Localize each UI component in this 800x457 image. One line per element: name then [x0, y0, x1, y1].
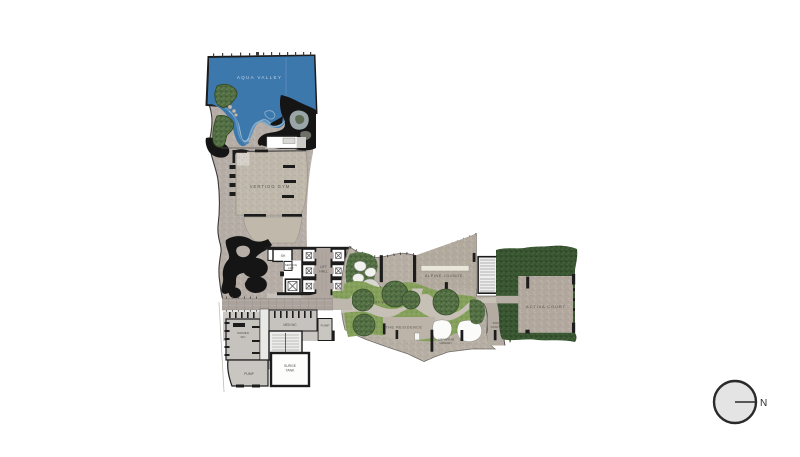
svg-text:ACTIVA COURT: ACTIVA COURT	[526, 304, 566, 309]
svg-text:SKY WALK CORRIDOR: SKY WALK CORRIDOR	[373, 301, 416, 305]
svg-text:THE RESIDENCE: THE RESIDENCE	[386, 326, 423, 330]
svg-text:PUMP: PUMP	[321, 324, 330, 328]
svg-text:N: N	[760, 398, 767, 409]
svg-text:LIBRARY: LIBRARY	[440, 341, 453, 345]
svg-text:WC: WC	[241, 335, 247, 339]
svg-text:LIFT: LIFT	[288, 266, 294, 270]
svg-text:SURGE: SURGE	[284, 364, 297, 368]
svg-text:PUMP: PUMP	[244, 372, 255, 376]
svg-text:AQUA VALLEY: AQUA VALLEY	[237, 75, 282, 80]
svg-text:HALL: HALL	[319, 270, 328, 274]
svg-text:SH: SH	[281, 254, 286, 258]
svg-text:MEN WC: MEN WC	[283, 323, 297, 327]
svg-text:TANK: TANK	[286, 369, 296, 373]
svg-text:LIFT: LIFT	[320, 265, 327, 269]
svg-text:ALPINE LOUNGE: ALPINE LOUNGE	[425, 274, 463, 278]
svg-text:VERTIGO GYM: VERTIGO GYM	[250, 184, 290, 189]
